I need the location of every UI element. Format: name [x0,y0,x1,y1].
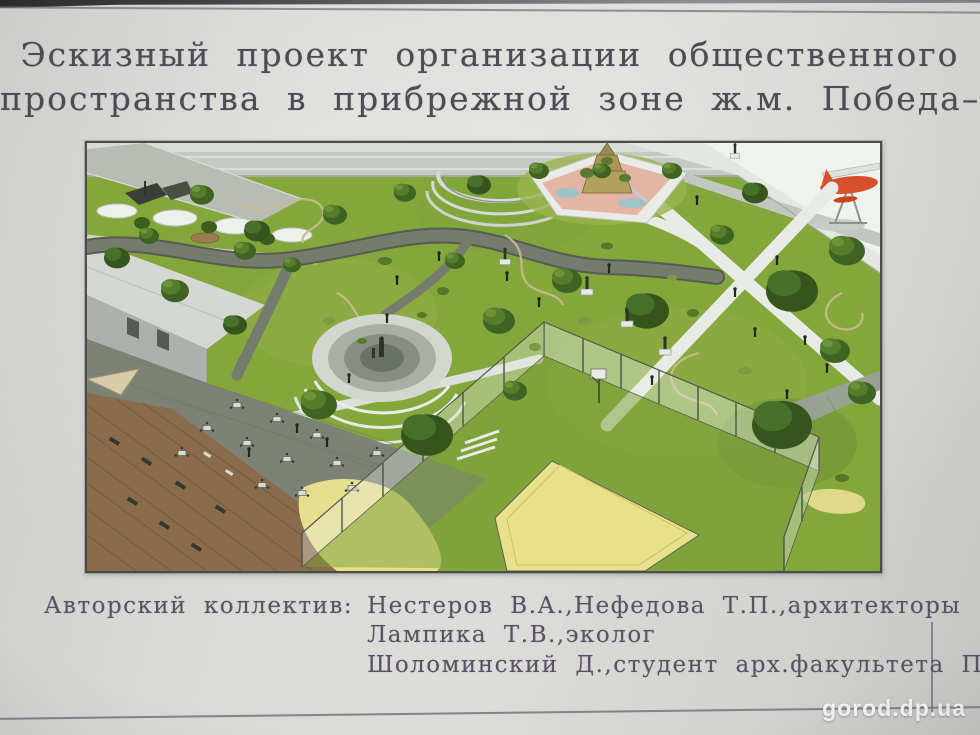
watermark: gorod.dp.ua [822,695,966,722]
park-render-scene [87,143,880,571]
sheet-frame-top-line [0,6,980,13]
title-line-1: Эскизный проект организации общественног… [0,33,980,77]
poster-title: Эскизный проект организации общественног… [0,33,980,121]
credits-block: Авторский коллектив: Нестеров В.А.,Нефед… [44,592,980,680]
poster-sheet: Эскизный проект организации общественног… [0,0,980,735]
title-line-2: пространства в прибрежной зоне ж.м. Побе… [0,77,980,121]
park-render-figure [85,141,882,573]
credits-entry: Нестеров В.А.,Нефедова Т.П.,архитекторы [367,592,980,621]
credits-label: Авторский коллектив: [44,592,353,621]
credits-entry: Лампика Т.В.,эколог [367,621,980,650]
credits-entry: Шоломинский Д.,студент арх.факультета ПГ… [367,651,980,680]
